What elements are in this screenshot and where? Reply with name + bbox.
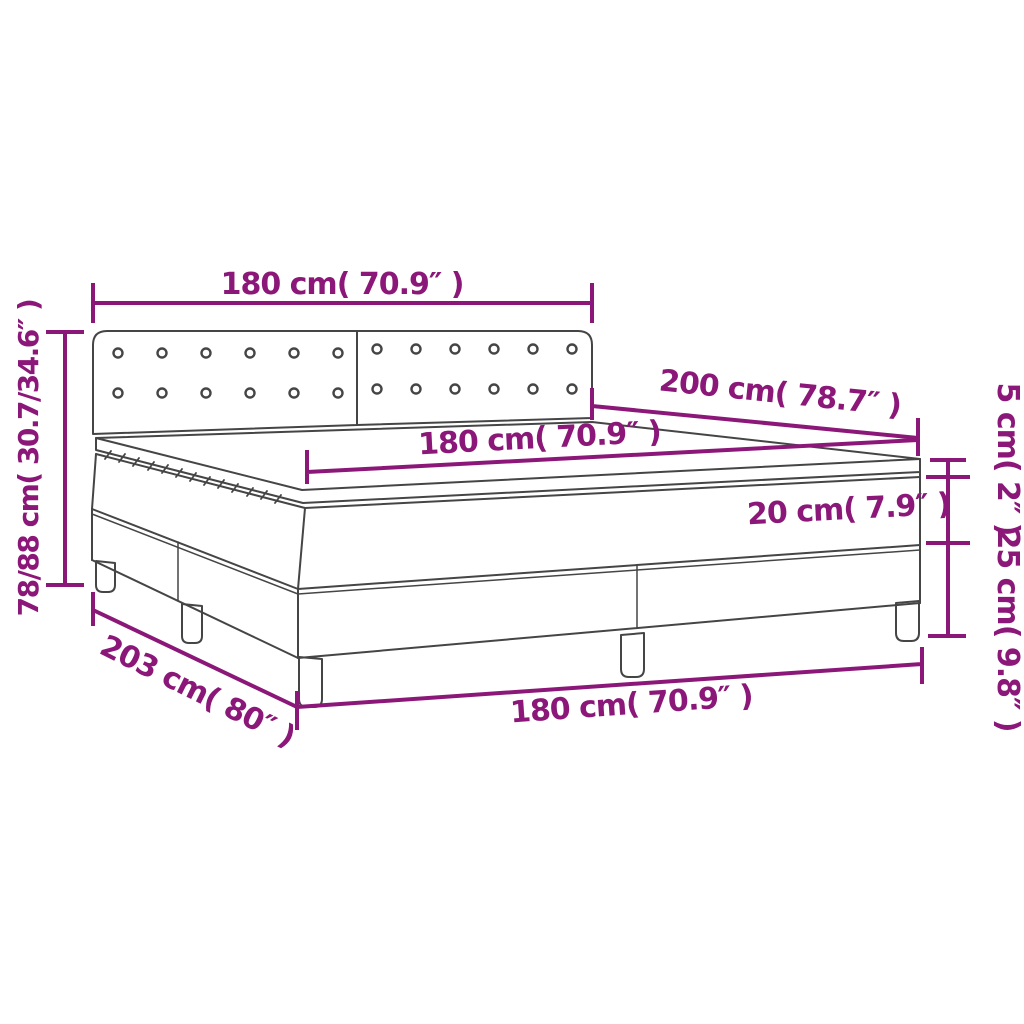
dim-label-base-height: 25 cm( 9.8″ ) (990, 528, 1024, 731)
dim-label-total-height: 78/88 cm( 30.7/34.6″ ) (12, 300, 45, 617)
bed-leg (896, 601, 919, 641)
bed-leg (299, 657, 322, 707)
dim-label-headboard-width: 180 cm( 70.9″ ) (221, 267, 464, 302)
headboard-left-panel (93, 331, 357, 434)
diagram-canvas: 180 cm( 70.9″ ) 78/88 cm( 30.7/34.6″ ) 2… (0, 0, 1024, 1024)
dim-label-base-width: 180 cm( 70.9″ ) (509, 679, 754, 731)
dim-label-topper-height: 5 cm( 2″ ) (990, 383, 1024, 536)
headboard-right-panel (357, 331, 592, 425)
bed-dimension-diagram: 180 cm( 70.9″ ) 78/88 cm( 30.7/34.6″ ) 2… (0, 0, 1024, 1024)
dim-label-floor-length: 203 cm( 80″ ) (94, 628, 300, 754)
dim-line-total-height (46, 332, 84, 585)
bed-leg (621, 633, 644, 677)
